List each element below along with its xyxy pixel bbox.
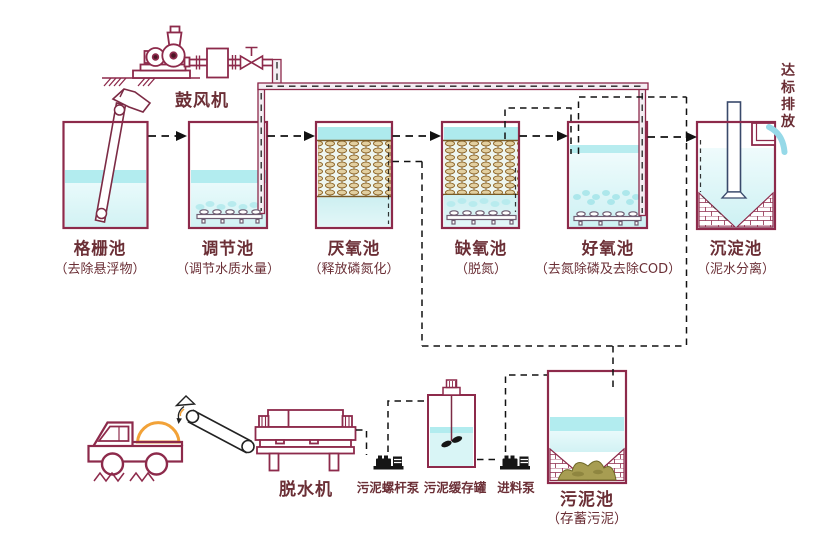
tank-label-regulating: 调节池: [178, 235, 278, 259]
flow-arrowheads: [176, 131, 697, 142]
discharge-label: 达标排放: [780, 63, 796, 131]
tank-note-grid: （去除悬浮物）: [40, 258, 160, 277]
tank-label-sedimentation: 沉淀池: [686, 235, 786, 259]
tank-anaerobic-pool: [316, 122, 392, 228]
tank-label-aerobic: 好氧池: [558, 235, 658, 259]
sludge-pool: [548, 371, 626, 483]
blower-label: 鼓风机: [158, 86, 246, 111]
sludge-pool-note: （存蓄污泥）: [541, 507, 633, 527]
feed-pump-icon: [500, 456, 530, 470]
tank-note-anaerobic: （释放磷氮化）: [294, 258, 414, 277]
tank-label-anaerobic: 厌氧池: [304, 235, 404, 259]
tank-note-anoxic: （脱氮）: [431, 258, 531, 277]
sludge-load-icon: [138, 423, 180, 442]
tank-grid-pool: [64, 89, 151, 228]
valve-icon: [241, 48, 263, 70]
tank-sedimentation-pool: [697, 102, 785, 229]
screw-pump-icon: [374, 456, 404, 470]
sludge-and-recycle-lines: [356, 97, 701, 460]
sludge-buffer-tank: [428, 380, 475, 467]
tank-label-grid: 格栅池: [50, 235, 150, 259]
blower-unit: [102, 27, 273, 87]
dewaterer-label: 脱水机: [266, 475, 346, 500]
flow-arrows: [149, 136, 687, 137]
sludge-truck: [89, 423, 183, 482]
wastewater-process-diagram: 鼓风机 格栅池 （去除悬浮物） 调节池 （调节水质水量） 厌氧池 （释放磷氮化）…: [0, 0, 836, 551]
feed-pump-label: 进料泵: [494, 477, 538, 496]
buffer-tank-label: 污泥缓存罐: [420, 477, 490, 496]
tank-note-aerobic: （去氮除磷及去除COD）: [526, 258, 690, 277]
dewatering-machine: [256, 410, 356, 471]
tank-note-sedimentation: （泥水分离）: [686, 258, 786, 277]
tank-label-anoxic: 缺氧池: [431, 235, 531, 259]
conveyor-belt: [177, 396, 255, 453]
tank-note-regulating: （调节水质水量）: [158, 258, 298, 277]
screw-pump-label: 污泥螺杆泵: [352, 477, 424, 496]
